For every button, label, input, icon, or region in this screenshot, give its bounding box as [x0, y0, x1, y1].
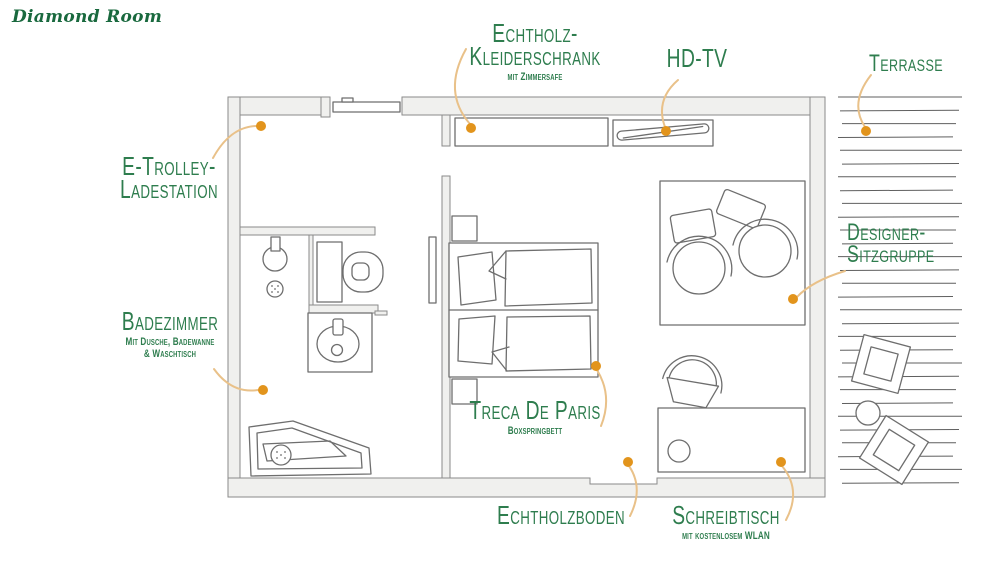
- label-bathroom: Badezimmer Mit Dusche, Badewanne & Wasch…: [105, 310, 235, 362]
- wardrobe: [455, 118, 608, 146]
- duvet: [506, 316, 591, 371]
- marker-dot-desk: [776, 457, 786, 467]
- pillow: [458, 316, 495, 364]
- label-terrace: Terrasse: [856, 53, 956, 76]
- seating-group: [660, 181, 805, 325]
- pillow: [458, 252, 496, 305]
- marker-dot-seating: [788, 294, 798, 304]
- label-bed: Treca De Paris Boxspringbett: [446, 399, 623, 439]
- bed: [449, 243, 598, 377]
- label-trolley: E-Trolley- Ladestation: [103, 155, 235, 203]
- floor-plan-page: Diamond Room: [0, 0, 1000, 565]
- label-floor: Echtholzboden: [475, 504, 648, 529]
- terrace-chair-2: [860, 416, 929, 485]
- desk-chair: [658, 349, 728, 412]
- label-tv: HD-TV: [656, 47, 738, 72]
- label-seating: Designer- Sitzgruppe: [847, 222, 965, 267]
- leader-terrace: [858, 75, 871, 127]
- marker-dot-wardrobe: [466, 123, 476, 133]
- marker-dot-bathroom: [258, 385, 268, 395]
- duvet: [505, 249, 592, 306]
- label-wardrobe: Echtholz- Kleiderschrank mit Zimmersafe: [446, 22, 623, 85]
- toilet: [317, 242, 383, 302]
- desk-lamp: [668, 440, 690, 462]
- terrace-table: [856, 401, 880, 425]
- shower: [263, 237, 287, 297]
- marker-dot-tv: [661, 126, 671, 136]
- marker-dot-trolley: [256, 121, 266, 131]
- washbasin: [308, 313, 372, 372]
- entrance-door: [333, 98, 400, 112]
- terrace-chair-1: [852, 335, 911, 394]
- bathroom-door: [429, 237, 436, 303]
- nightstand: [452, 216, 477, 241]
- marker-dot-bed: [591, 361, 601, 371]
- marker-dot-floor: [623, 457, 633, 467]
- marker-dot-terrace: [861, 126, 871, 136]
- bathtub: [249, 421, 371, 476]
- label-desk: Schreibtisch mit kostenlosem WLAN: [653, 504, 798, 544]
